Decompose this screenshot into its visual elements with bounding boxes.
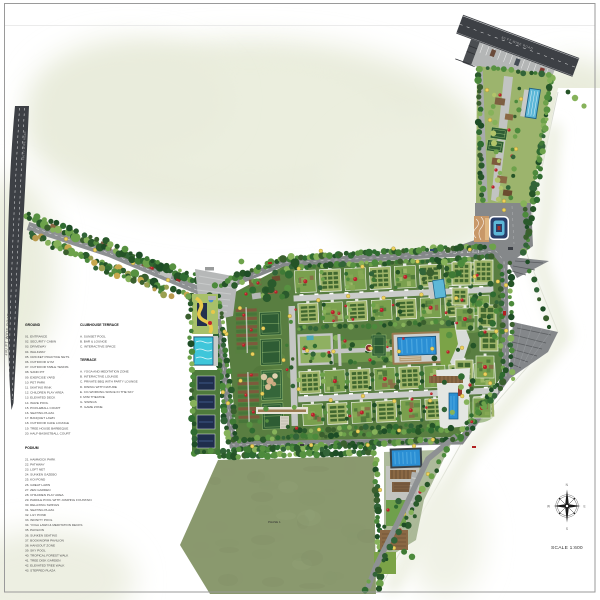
svg-text:21. HAMMOCK PARK: 21. HAMMOCK PARK	[25, 458, 56, 462]
svg-text:26. GREAT LAWN: 26. GREAT LAWN	[25, 483, 50, 487]
svg-text:39. SKY POOL: 39. SKY POOL	[25, 548, 46, 552]
svg-text:14. WAVE POOL: 14. WAVE POOL	[25, 401, 49, 405]
svg-text:W: W	[547, 504, 550, 508]
svg-text:40. TROPICAL FOREST WALK: 40. TROPICAL FOREST WALK	[25, 553, 69, 557]
svg-text:F. MINI THEATRE: F. MINI THEATRE	[80, 395, 105, 399]
svg-text:SCALE 1:600: SCALE 1:600	[551, 545, 583, 551]
svg-text:B. INTERACTIVE LOUNGE: B. INTERACTIVE LOUNGE	[80, 375, 118, 379]
svg-text:19. TREE HOUSE BARBEQUE: 19. TREE HOUSE BARBEQUE	[25, 426, 68, 430]
svg-text:41. TREE DISK GARDEN: 41. TREE DISK GARDEN	[25, 559, 61, 563]
svg-text:09. EXERCISE YARD: 09. EXERCISE YARD	[25, 375, 56, 379]
svg-text:E. CO-WORKING SPACE IN THE SKY: E. CO-WORKING SPACE IN THE SKY	[80, 390, 134, 394]
svg-text:C. INTERACTIVE SPACE: C. INTERACTIVE SPACE	[80, 345, 116, 349]
svg-text:33. INFINITY POOL: 33. INFINITY POOL	[25, 518, 53, 522]
svg-text:04. WALKWAY: 04. WALKWAY	[25, 350, 46, 354]
svg-text:S: S	[566, 527, 568, 531]
svg-text:03. DRIVEWAY: 03. DRIVEWAY	[25, 345, 46, 349]
svg-text:06. OUTDOOR GYM: 06. OUTDOOR GYM	[25, 360, 54, 364]
svg-text:38. HANGOUT ZONE: 38. HANGOUT ZONE	[25, 543, 55, 547]
svg-text:16. SEATING PLAZA: 16. SEATING PLAZA	[25, 411, 55, 415]
svg-text:22. PATHWAY: 22. PATHWAY	[25, 463, 45, 467]
svg-text:02. SECURITY CABIN: 02. SECURITY CABIN	[25, 340, 56, 344]
svg-text:07. OUTDOOR TABLE TENNIS: 07. OUTDOOR TABLE TENNIS	[25, 365, 69, 369]
svg-text:01. ENTRANCE: 01. ENTRANCE	[25, 335, 47, 339]
svg-text:17. BANQUET LAWN: 17. BANQUET LAWN	[25, 416, 55, 420]
svg-text:G. SWINGS: G. SWINGS	[80, 400, 97, 404]
svg-text:31. SEATING PLAZA: 31. SEATING PLAZA	[25, 508, 55, 512]
svg-text:CLUBHOUSE TERRACE: CLUBHOUSE TERRACE	[80, 323, 120, 327]
svg-text:24. SUNKEN GAZEBO: 24. SUNKEN GAZEBO	[25, 473, 57, 477]
svg-text:20. HALF-BASKETBALL COURT: 20. HALF-BASKETBALL COURT	[25, 431, 71, 435]
svg-text:GROUND: GROUND	[25, 323, 41, 327]
svg-text:H. GAME ZONE: H. GAME ZONE	[80, 405, 103, 409]
svg-text:D. DINING WITH NATURE: D. DINING WITH NATURE	[80, 385, 117, 389]
svg-text:43. STEPPED PLAZA: 43. STEPPED PLAZA	[25, 569, 56, 573]
svg-text:37. BOOKWORM PAVILION: 37. BOOKWORM PAVILION	[25, 538, 64, 542]
svg-text:11. SKATING RINK: 11. SKATING RINK	[25, 386, 52, 390]
svg-text:32. LILY POND: 32. LILY POND	[25, 513, 47, 517]
svg-text:15. PICKLEBALL COURT: 15. PICKLEBALL COURT	[25, 406, 61, 410]
svg-text:13. ELEVATED DECK: 13. ELEVATED DECK	[25, 396, 56, 400]
svg-text:C. PRIVATE BBQ WITH PARTY LOUN: C. PRIVATE BBQ WITH PARTY LOUNGE	[80, 380, 138, 384]
svg-text:B. BAR & LOUNGE: B. BAR & LOUNGE	[80, 340, 107, 344]
svg-text:30. RELAXING SWINGS: 30. RELAXING SWINGS	[25, 503, 59, 507]
svg-text:34. YOGA LAWN & MEDITATION DEC: 34. YOGA LAWN & MEDITATION DECKS	[25, 523, 82, 527]
svg-text:27. ZEN GARDEN: 27. ZEN GARDEN	[25, 488, 50, 492]
svg-text:10. PET PARK: 10. PET PARK	[25, 380, 46, 384]
svg-text:05. CRICKET PRACTICE NETS: 05. CRICKET PRACTICE NETS	[25, 355, 69, 359]
svg-text:A. YOGA AND MEDITATION ZONE: A. YOGA AND MEDITATION ZONE	[80, 370, 129, 374]
svg-text:25. KOI POND: 25. KOI POND	[25, 478, 46, 482]
svg-text:23. LOFT NET: 23. LOFT NET	[25, 468, 45, 472]
svg-text:18. OUTDOOR CAFE LOUNGE: 18. OUTDOOR CAFE LOUNGE	[25, 421, 69, 425]
svg-text:29. PADDLE POOL WITH JUMPING F: 29. PADDLE POOL WITH JUMPING FOUNTAIN	[25, 498, 92, 502]
svg-text:PHASE 1: PHASE 1	[268, 520, 281, 524]
svg-text:42. ELEVATED TREE WALK: 42. ELEVATED TREE WALK	[25, 564, 65, 568]
svg-text:A. SUNSET POOL: A. SUNSET POOL	[80, 335, 106, 339]
svg-text:PODIUM: PODIUM	[25, 446, 39, 450]
svg-text:35. PAVILION: 35. PAVILION	[25, 528, 44, 532]
svg-text:08. SAND PIT: 08. SAND PIT	[25, 370, 45, 374]
svg-text:E: E	[584, 504, 586, 508]
svg-text:12. CHILDREN PLAY AREA: 12. CHILDREN PLAY AREA	[25, 391, 65, 395]
svg-text:28. CHILDREN PLAY AREA: 28. CHILDREN PLAY AREA	[25, 493, 65, 497]
svg-text:TERRACE: TERRACE	[80, 358, 97, 362]
svg-text:36. SUNKEN SEATING: 36. SUNKEN SEATING	[25, 533, 58, 537]
